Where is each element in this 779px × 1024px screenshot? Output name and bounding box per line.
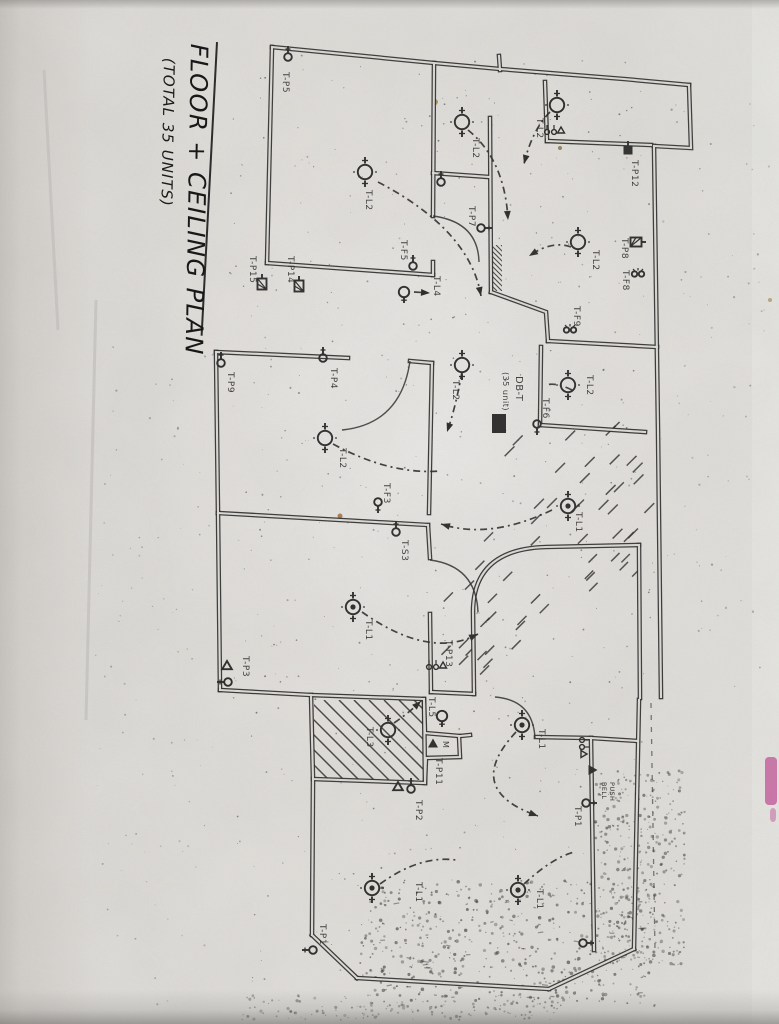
scanned-floor-plan-page: T-L2T-L2T-L2T-L2T-L2T-L2T-L2T-L4T-L1T-L1…: [0, 0, 779, 1024]
drawing-title: FLOOR + CEILING PLAN: [180, 44, 213, 357]
drawing-subtitle: (TOTAL 35 UNITS): [157, 58, 178, 207]
floor-plan-canvas: T-L2T-L2T-L2T-L2T-L2T-L2T-L2T-L4T-L1T-L1…: [0, 0, 779, 1024]
scan-grain: [0, 0, 779, 1024]
